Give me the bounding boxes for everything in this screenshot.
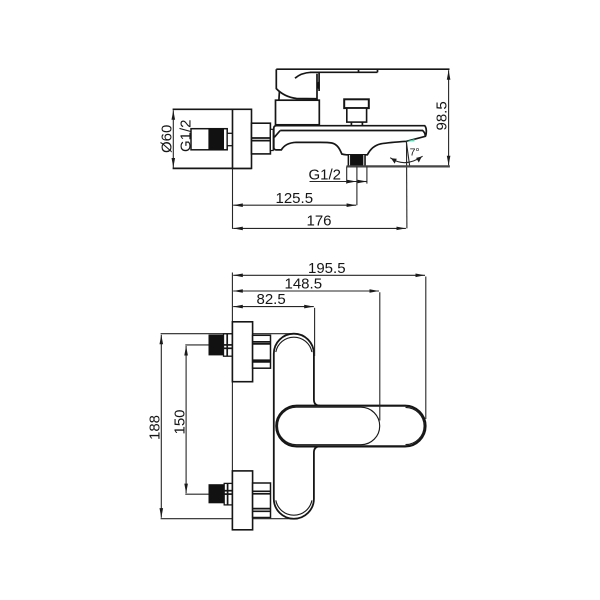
svg-text:188: 188 xyxy=(146,415,163,440)
svg-text:125.5: 125.5 xyxy=(276,190,314,207)
svg-text:82.5: 82.5 xyxy=(257,291,286,308)
svg-text:148.5: 148.5 xyxy=(285,276,323,293)
svg-text:G1/2: G1/2 xyxy=(309,167,342,184)
svg-text:195.5: 195.5 xyxy=(308,260,346,277)
svg-text:Ø60: Ø60 xyxy=(159,125,176,153)
svg-text:7°: 7° xyxy=(410,146,420,158)
svg-text:150: 150 xyxy=(171,409,188,434)
svg-text:98.5: 98.5 xyxy=(434,101,451,130)
svg-text:176: 176 xyxy=(307,213,332,230)
